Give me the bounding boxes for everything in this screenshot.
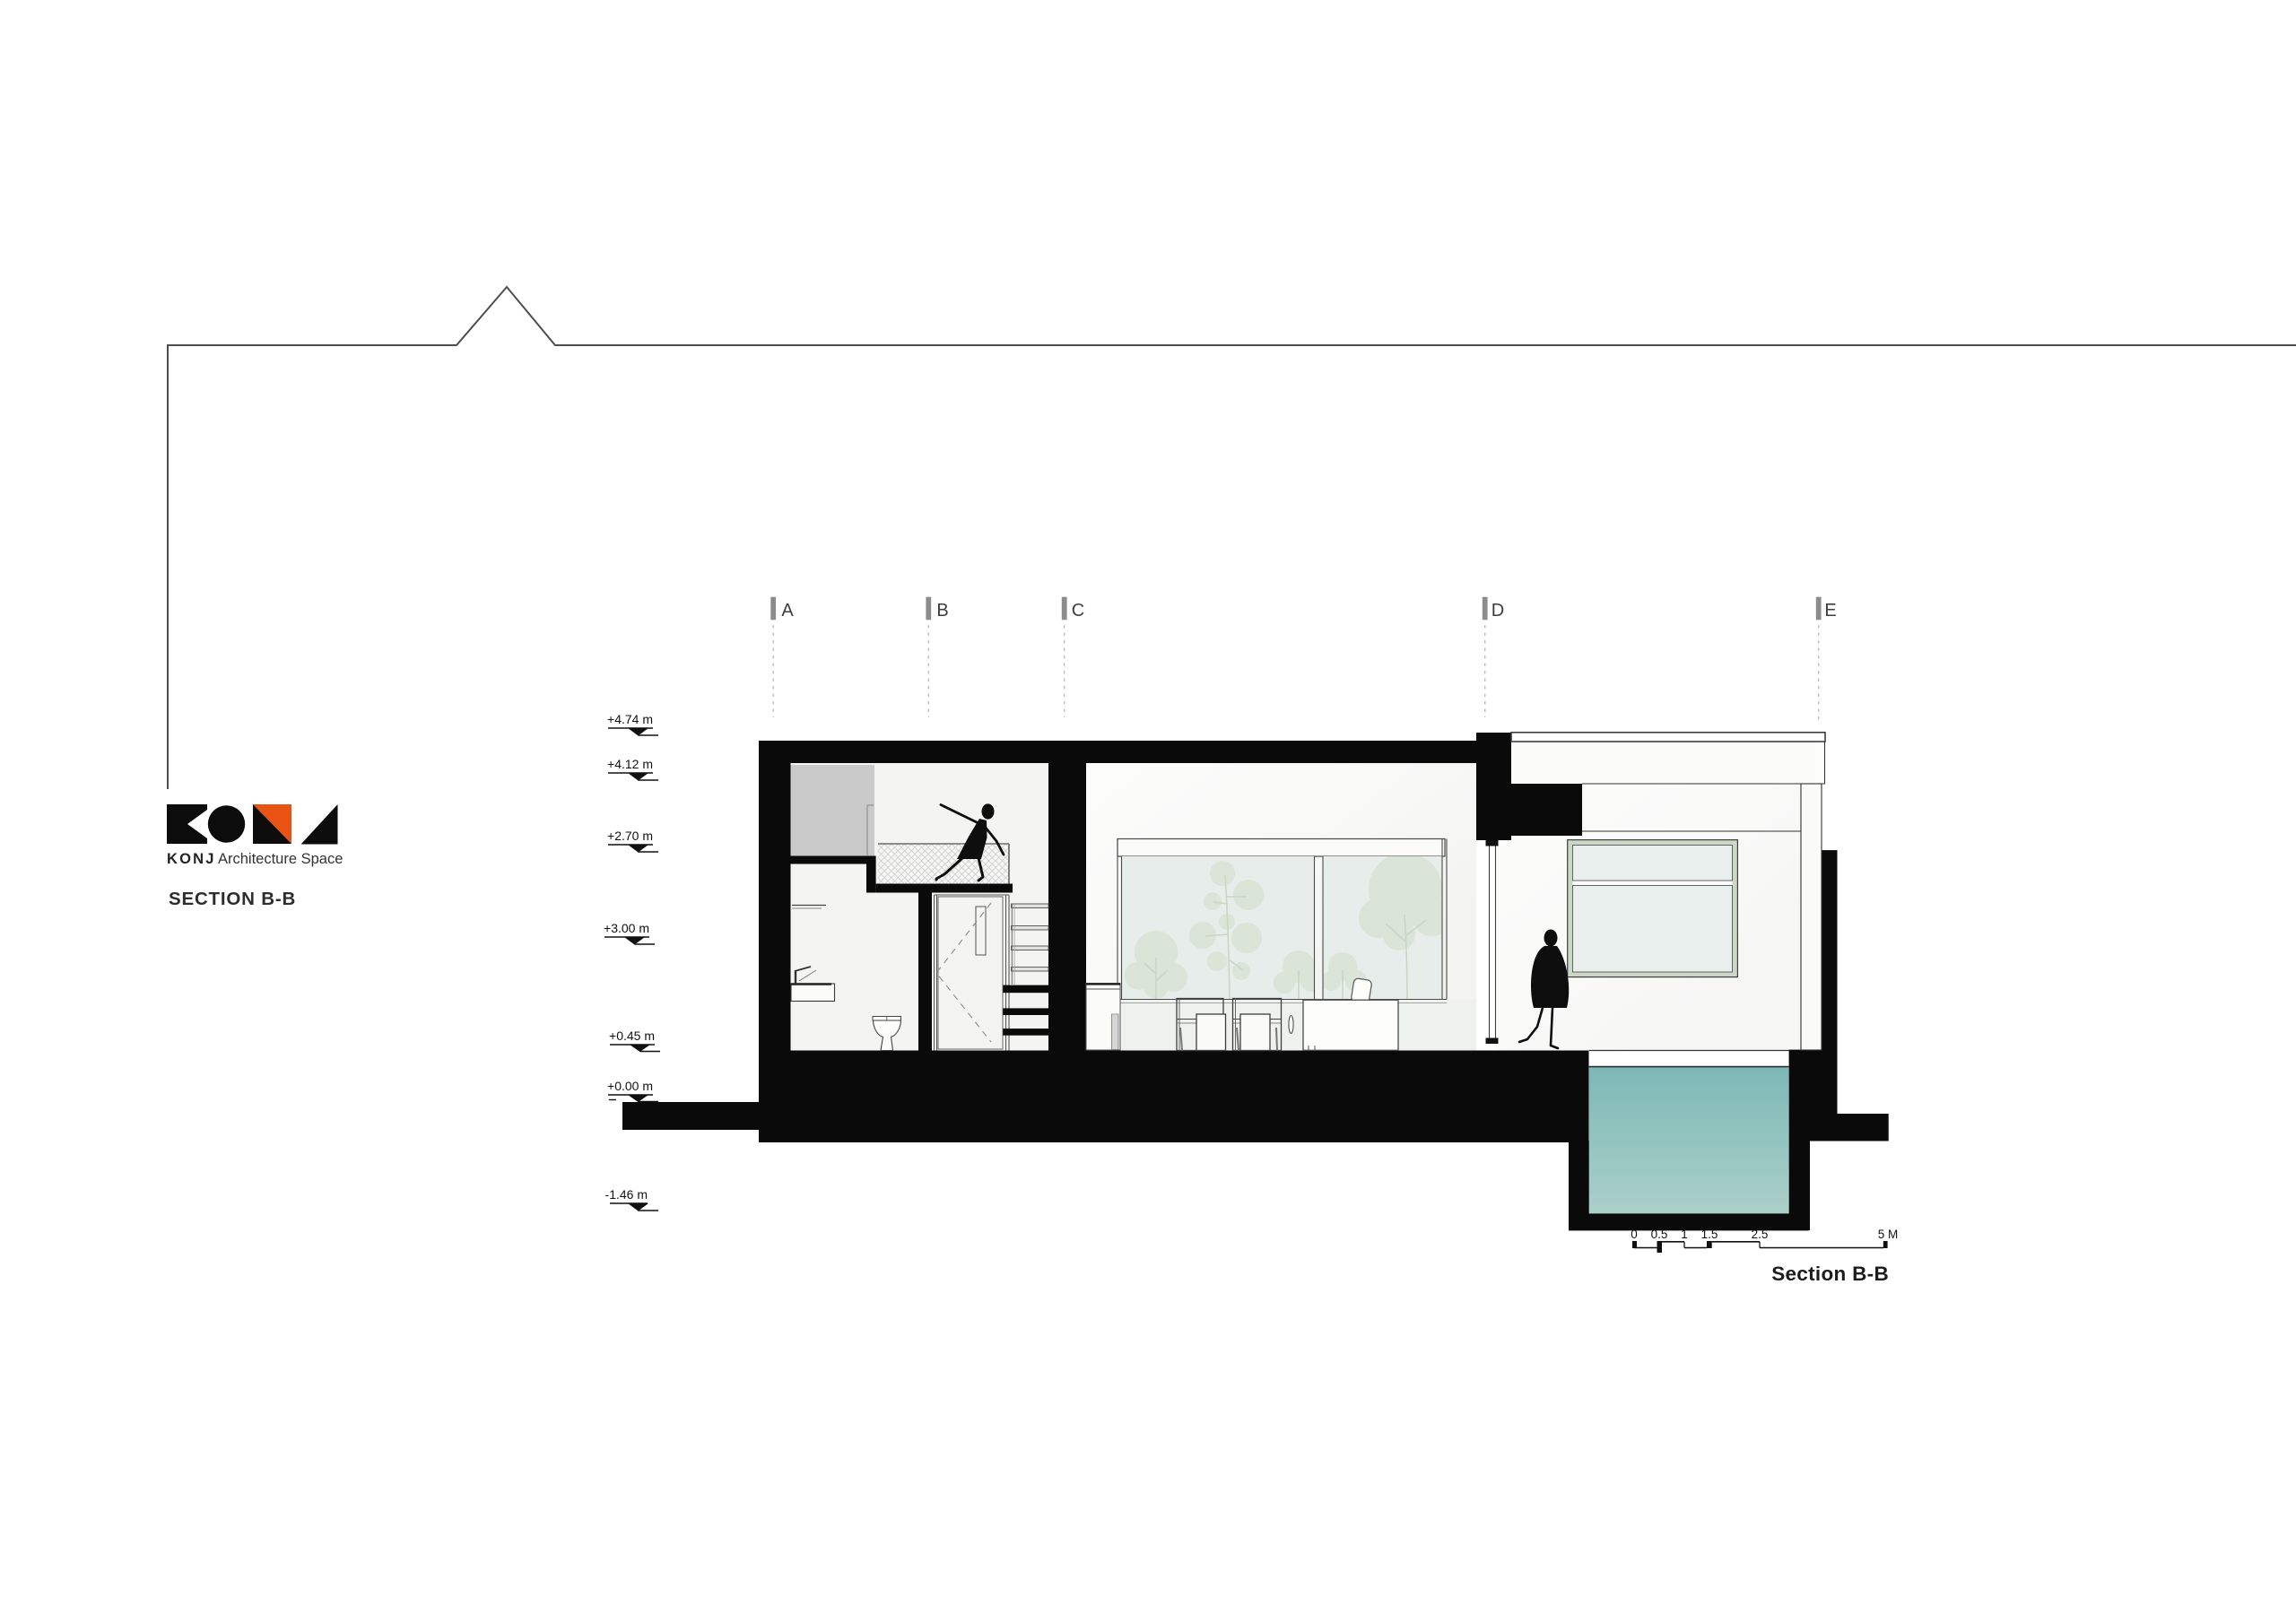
svg-text:5 M: 5 M xyxy=(1878,1228,1899,1241)
svg-text:-1.46 m: -1.46 m xyxy=(605,1187,648,1202)
svg-text:Architecture Space: Architecture Space xyxy=(218,851,343,867)
svg-text:B: B xyxy=(936,601,948,621)
svg-text:SECTION B-B: SECTION B-B xyxy=(169,889,296,909)
svg-text:2.5: 2.5 xyxy=(1752,1228,1769,1241)
svg-text:E: E xyxy=(1824,601,1836,621)
svg-text:Section B-B: Section B-B xyxy=(1771,1263,1889,1285)
svg-text:+0.45 m: +0.45 m xyxy=(609,1028,655,1043)
svg-text:0.5: 0.5 xyxy=(1651,1228,1668,1241)
svg-text:KONJ: KONJ xyxy=(167,851,216,867)
svg-text:+4.74 m: +4.74 m xyxy=(607,712,653,726)
svg-text:+2.70 m: +2.70 m xyxy=(607,829,653,843)
svg-text:+4.12 m: +4.12 m xyxy=(607,757,653,771)
svg-text:1.5: 1.5 xyxy=(1701,1228,1718,1241)
svg-text:+3.00 m: +3.00 m xyxy=(604,921,649,935)
svg-text:A: A xyxy=(781,601,794,621)
svg-text:0: 0 xyxy=(1631,1228,1638,1241)
svg-text:+0.00 m: +0.00 m xyxy=(607,1079,653,1093)
svg-text:D: D xyxy=(1492,601,1504,621)
svg-text:C: C xyxy=(1072,601,1084,621)
svg-text:1: 1 xyxy=(1681,1228,1688,1241)
